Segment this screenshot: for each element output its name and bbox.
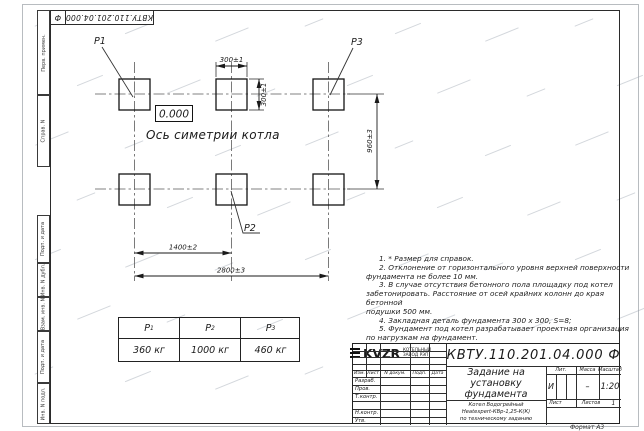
tb-lit-value: И	[546, 374, 556, 399]
tb-sheets: Листов 1	[576, 399, 621, 407]
load-value-p3: 460 кг	[241, 339, 300, 361]
point-label-p2: P2	[244, 223, 256, 234]
dim-text-square-h: 300±1	[260, 83, 268, 107]
tb-row-nkontr: Н.контр.	[353, 409, 380, 417]
kvzr-logo: KVZR КОТЕЛЬНЫЙ ЗАВОД РЭП	[353, 344, 428, 362]
note-line: забетонировать. Расстояние от осей крайн…	[366, 290, 630, 308]
tb-row-razrab: Разраб.	[353, 377, 380, 385]
tb-scale-value: 1:20	[599, 374, 621, 399]
point-label-p3: P3	[351, 37, 363, 48]
tb-row-prov: Пров.	[353, 385, 380, 393]
title-block: Изм. Лист N докум. Подп. Дата Разраб. Пр…	[352, 343, 620, 424]
tb-sheets-value: 1	[612, 400, 616, 407]
leader-p1	[102, 47, 133, 97]
point-label-p1: P1	[94, 36, 106, 47]
kvzr-logo-text: KVZR	[363, 346, 400, 361]
load-value-p1: 360 кг	[119, 339, 180, 361]
load-table-header-p1: P1	[119, 318, 180, 339]
tb-title: Задание на установку фундамента	[446, 366, 546, 400]
center-lines	[95, 62, 350, 281]
tb-doc-number: КВТУ.110.201.04.000 Ф	[446, 344, 621, 366]
load-table: P1 P2 P3 360 кг 1000 кг 460 кг	[118, 317, 300, 362]
load-table-header-p3: P3	[241, 318, 300, 339]
load-table-header-p2: P2	[180, 318, 241, 339]
tb-lit-label: Лит.	[546, 366, 576, 374]
tb-sheets-label: Листов	[582, 400, 601, 406]
dim-text-col-spacing: 1400±2	[169, 244, 198, 252]
dim-text-square-w: 300±1	[220, 56, 244, 64]
leader-p3	[330, 48, 353, 95]
elevation-value: 0.000	[159, 109, 189, 121]
tb-col-list: Лист	[366, 370, 380, 377]
tb-col-data: Дата	[429, 370, 446, 377]
tb-mass-value: –	[576, 374, 599, 399]
tb-row-blank	[353, 401, 380, 409]
dim-text-total-width: 2800±3	[217, 267, 245, 275]
tb-col-ndokum: N докум.	[380, 370, 410, 377]
note-line: по нагрузкам на фундамент.	[366, 334, 630, 343]
axis-of-symmetry-label: Ось симетрии котла	[146, 128, 280, 142]
tb-col-podp: Подп.	[410, 370, 429, 377]
dim-text-row-spacing: 960±3	[366, 129, 374, 153]
tb-subtitle: Котел Водогрейный Heatexpert-КВр-1,25-К(…	[446, 400, 546, 425]
tb-row-tkontr: Т.контр.	[353, 393, 380, 401]
tb-row-utv: Утв.	[353, 417, 380, 425]
load-value-p2: 1000 кг	[180, 339, 241, 361]
extension-lines	[216, 62, 384, 189]
notes-block: 1. * Размер для справок. 2. Отклонение о…	[366, 255, 630, 343]
tb-col-izm: Изм.	[353, 370, 366, 377]
tb-mass-label: Масса	[576, 366, 599, 374]
tb-sheet-label: Лист	[546, 399, 576, 407]
tb-scale-label: Масштаб	[599, 366, 621, 374]
